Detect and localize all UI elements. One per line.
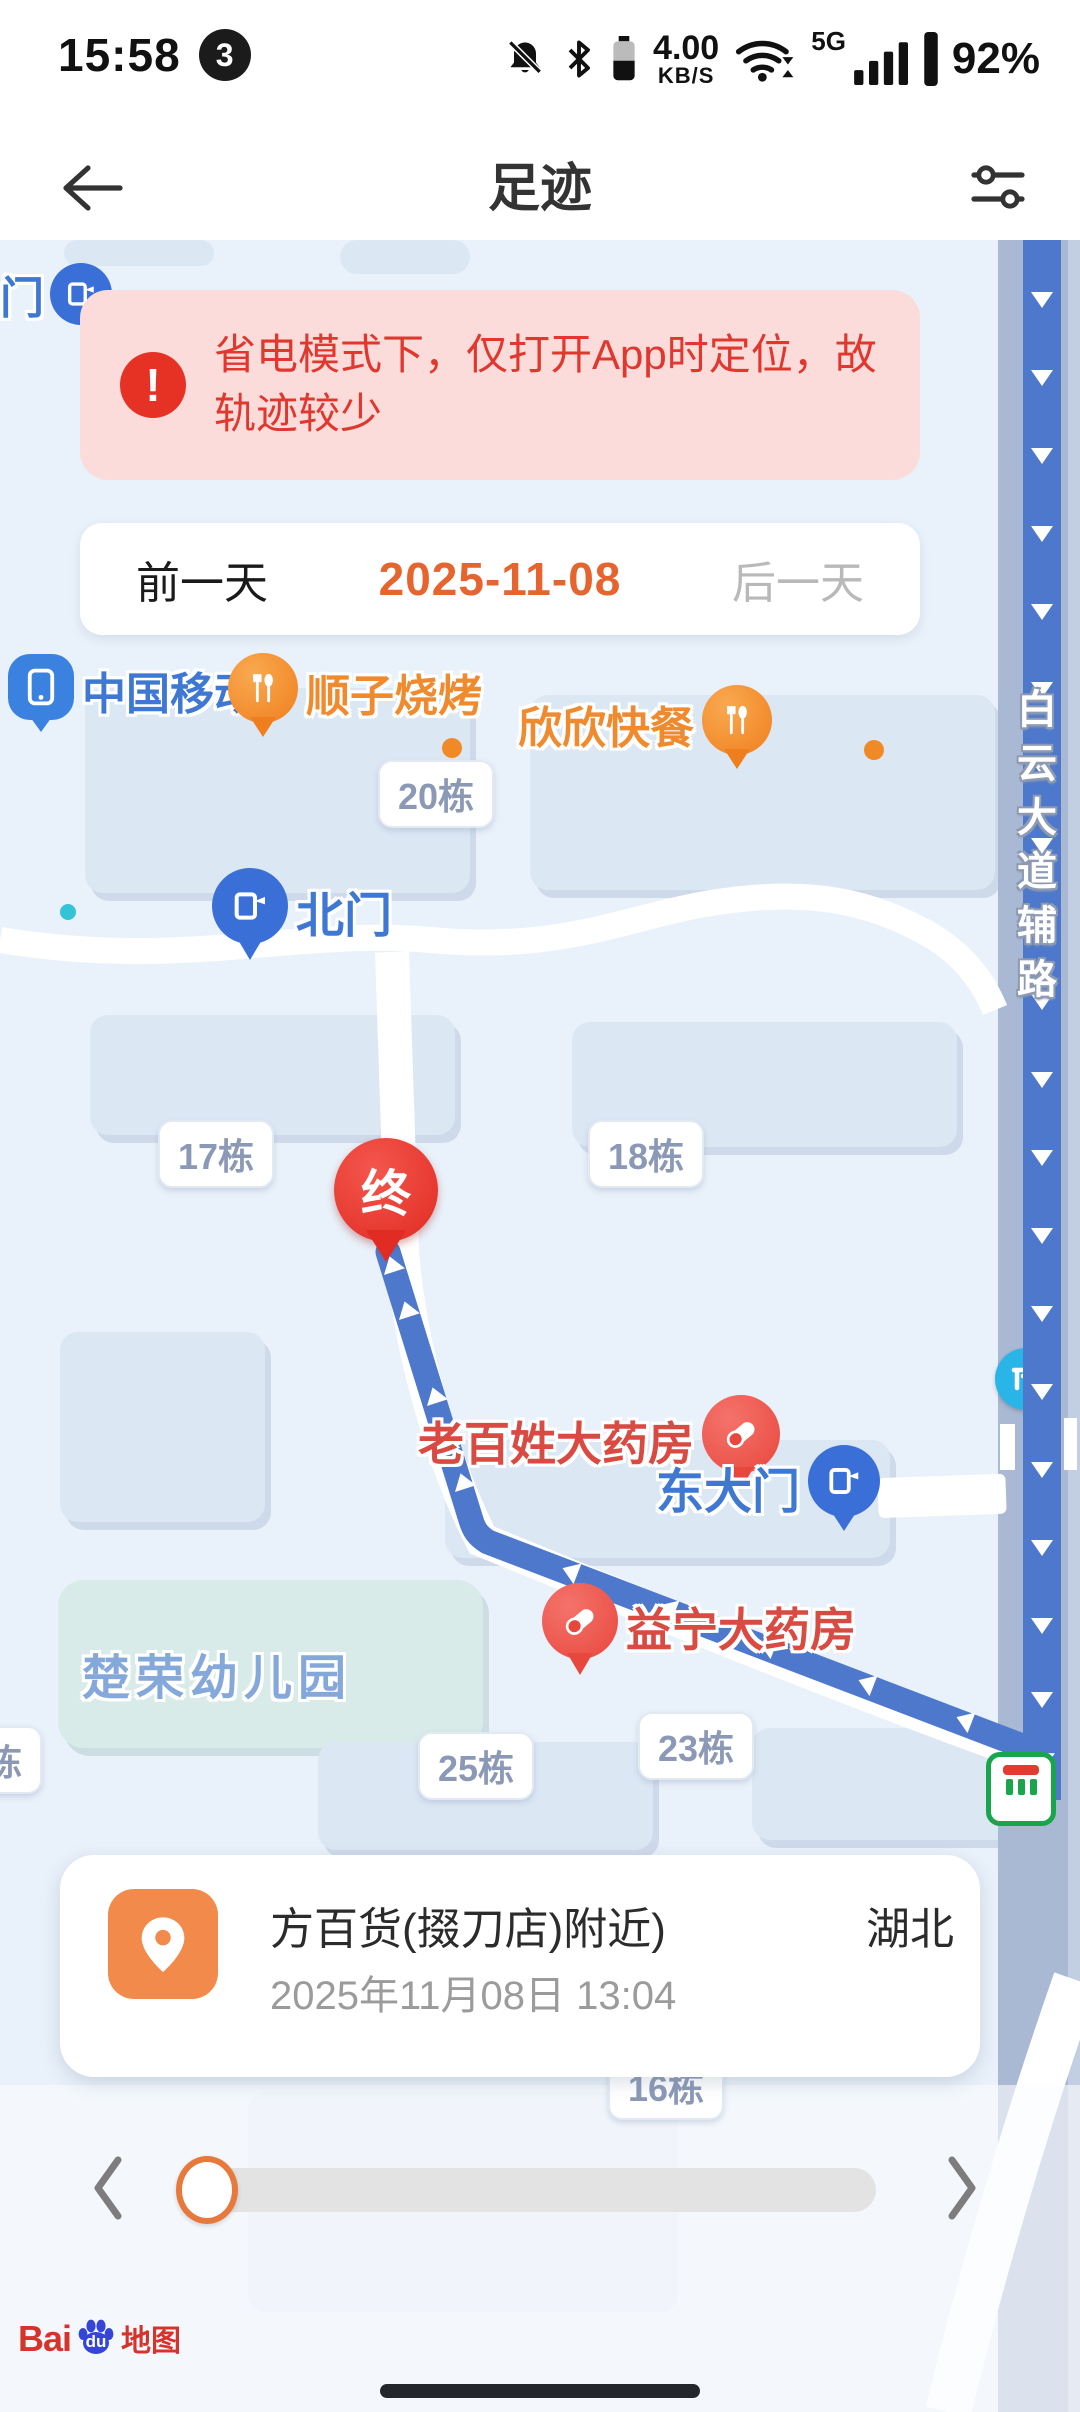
warning-text: 省电模式下，仅打开App时定位，故轨迹较少 (214, 298, 880, 472)
pharmacy-pin-icon (542, 1583, 618, 1659)
restaurant-pin-icon (228, 653, 298, 723)
building-label-partial: 栋 (0, 1726, 42, 1794)
location-title-tail: 湖北 (866, 1893, 954, 1957)
baidu-maps-logo: Bai du 地图 (18, 2316, 181, 2360)
location-title: 方百货(掇刀店)附近) (270, 1893, 666, 1957)
gesture-handle[interactable] (380, 2384, 700, 2398)
restaurant-pin-icon (702, 685, 772, 755)
track-slider (0, 2140, 1080, 2240)
mute-bell-icon (503, 37, 547, 81)
poi-dot (442, 738, 462, 758)
location-card[interactable]: 方百货(掇刀店)附近) 湖北 2025年11月08日 13:04 (60, 1855, 980, 2077)
bt-device-battery-icon (611, 36, 637, 82)
page-title: 足迹 (0, 146, 1080, 221)
bus-station-icon (986, 1752, 1056, 1826)
building-label-25: 25栋 (418, 1732, 534, 1800)
poi-dot (864, 740, 884, 760)
battery-percent: 92% (952, 34, 1040, 84)
status-bar: 15:58 3 4.00 KB/S 5G (0, 0, 1080, 130)
building-label-23: 23栋 (638, 1712, 754, 1780)
next-day-button[interactable]: 后一天 (732, 547, 864, 611)
road-name-label: 白云大道辅路 (1004, 688, 1062, 1012)
slider-next-chevron[interactable] (938, 2152, 984, 2224)
signal-bar2-icon (924, 32, 938, 86)
bluetooth-icon (561, 37, 597, 81)
network-speed: 4.00 KB/S (653, 31, 719, 87)
gate-pin-icon (212, 868, 288, 944)
poi-shunzi-bbq: 顺子烧烤 (228, 660, 482, 724)
poi-china-mobile: 中国移动 (8, 658, 258, 722)
clock: 15:58 (58, 28, 181, 82)
slider-knob[interactable] (176, 2156, 238, 2224)
baidu-paw-icon: du (74, 2316, 118, 2360)
poi-xinxin-fastfood: 欣欣快餐 (518, 692, 772, 756)
prev-day-button[interactable]: 前一天 (136, 547, 268, 611)
building-label-20: 20栋 (378, 760, 494, 828)
end-marker-pin: 终 (334, 1138, 438, 1242)
slider-prev-chevron[interactable] (86, 2152, 132, 2224)
poi-north-gate: 北门 (212, 876, 392, 946)
power-save-warning-banner: ! 省电模式下，仅打开App时定位，故轨迹较少 (80, 290, 920, 480)
location-pin-icon (108, 1889, 218, 1999)
building-label-17: 17栋 (158, 1120, 274, 1188)
route-arrows (379, 292, 1055, 1775)
phone-pin-icon (8, 654, 74, 720)
location-timestamp: 2025年11月08日 13:04 (270, 1963, 676, 2021)
current-date[interactable]: 2025-11-08 (379, 552, 622, 606)
signal-bars-icon (854, 33, 910, 85)
poi-kindergarten: 楚荣幼儿园 (82, 1638, 352, 1708)
poi-dot-cyan (60, 904, 76, 920)
page-header: 足迹 (0, 130, 1080, 240)
slider-track[interactable] (200, 2168, 876, 2212)
wifi-icon (735, 35, 797, 83)
network-type-label: 5G (811, 26, 846, 57)
bottom-panel (0, 2085, 1080, 2412)
filter-settings-button[interactable] (960, 152, 1036, 222)
map-canvas[interactable]: 白云大道辅路 门 中国移动 (0, 240, 1080, 2412)
poi-yining-pharmacy: 益宁大药房 (542, 1594, 856, 1660)
building-label-18: 18栋 (588, 1120, 704, 1188)
poi-east-gate: 东大门 (656, 1452, 880, 1522)
date-navigator: 前一天 2025-11-08 后一天 (80, 523, 920, 635)
alert-icon: ! (120, 352, 186, 418)
notification-count-badge: 3 (199, 29, 251, 81)
app-screen: 15:58 3 4.00 KB/S 5G (0, 0, 1080, 2412)
gate-pin-icon (808, 1445, 880, 1517)
